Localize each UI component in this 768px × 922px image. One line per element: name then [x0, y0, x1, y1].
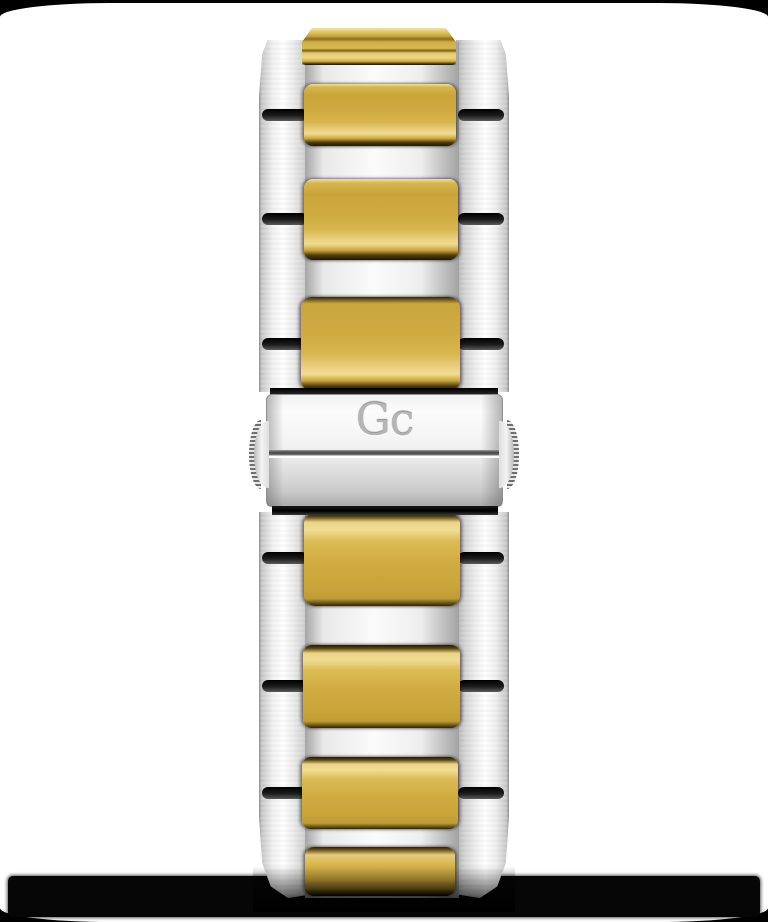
- link-slot: [458, 680, 504, 692]
- link-slot: [458, 109, 504, 121]
- gold-link-6: [302, 757, 458, 829]
- gold-link-4: [304, 513, 460, 606]
- clasp-lower-shade: [267, 458, 502, 506]
- link-slot: [262, 552, 308, 564]
- clasp-bottom-gap: [272, 506, 498, 515]
- link-slot: [458, 787, 504, 799]
- link-slot: [458, 552, 504, 564]
- gc-logo-engraving: Gc: [266, 396, 503, 446]
- gold-end-link: [302, 28, 456, 65]
- clasp-seam-line: [266, 450, 503, 458]
- steel-column-right-lower: [456, 512, 509, 902]
- bracelet-bottom-fade: [253, 866, 515, 912]
- link-slot: [458, 213, 504, 225]
- link-slot: [262, 213, 308, 225]
- link-slot: [262, 109, 308, 121]
- watch-bracelet-image: Gc: [0, 0, 768, 922]
- gold-link-2: [304, 179, 458, 260]
- gold-link-1: [304, 84, 456, 146]
- link-slot: [262, 680, 308, 692]
- link-slot: [458, 338, 504, 350]
- gold-link-3: [301, 297, 460, 391]
- gold-link-5: [303, 645, 460, 728]
